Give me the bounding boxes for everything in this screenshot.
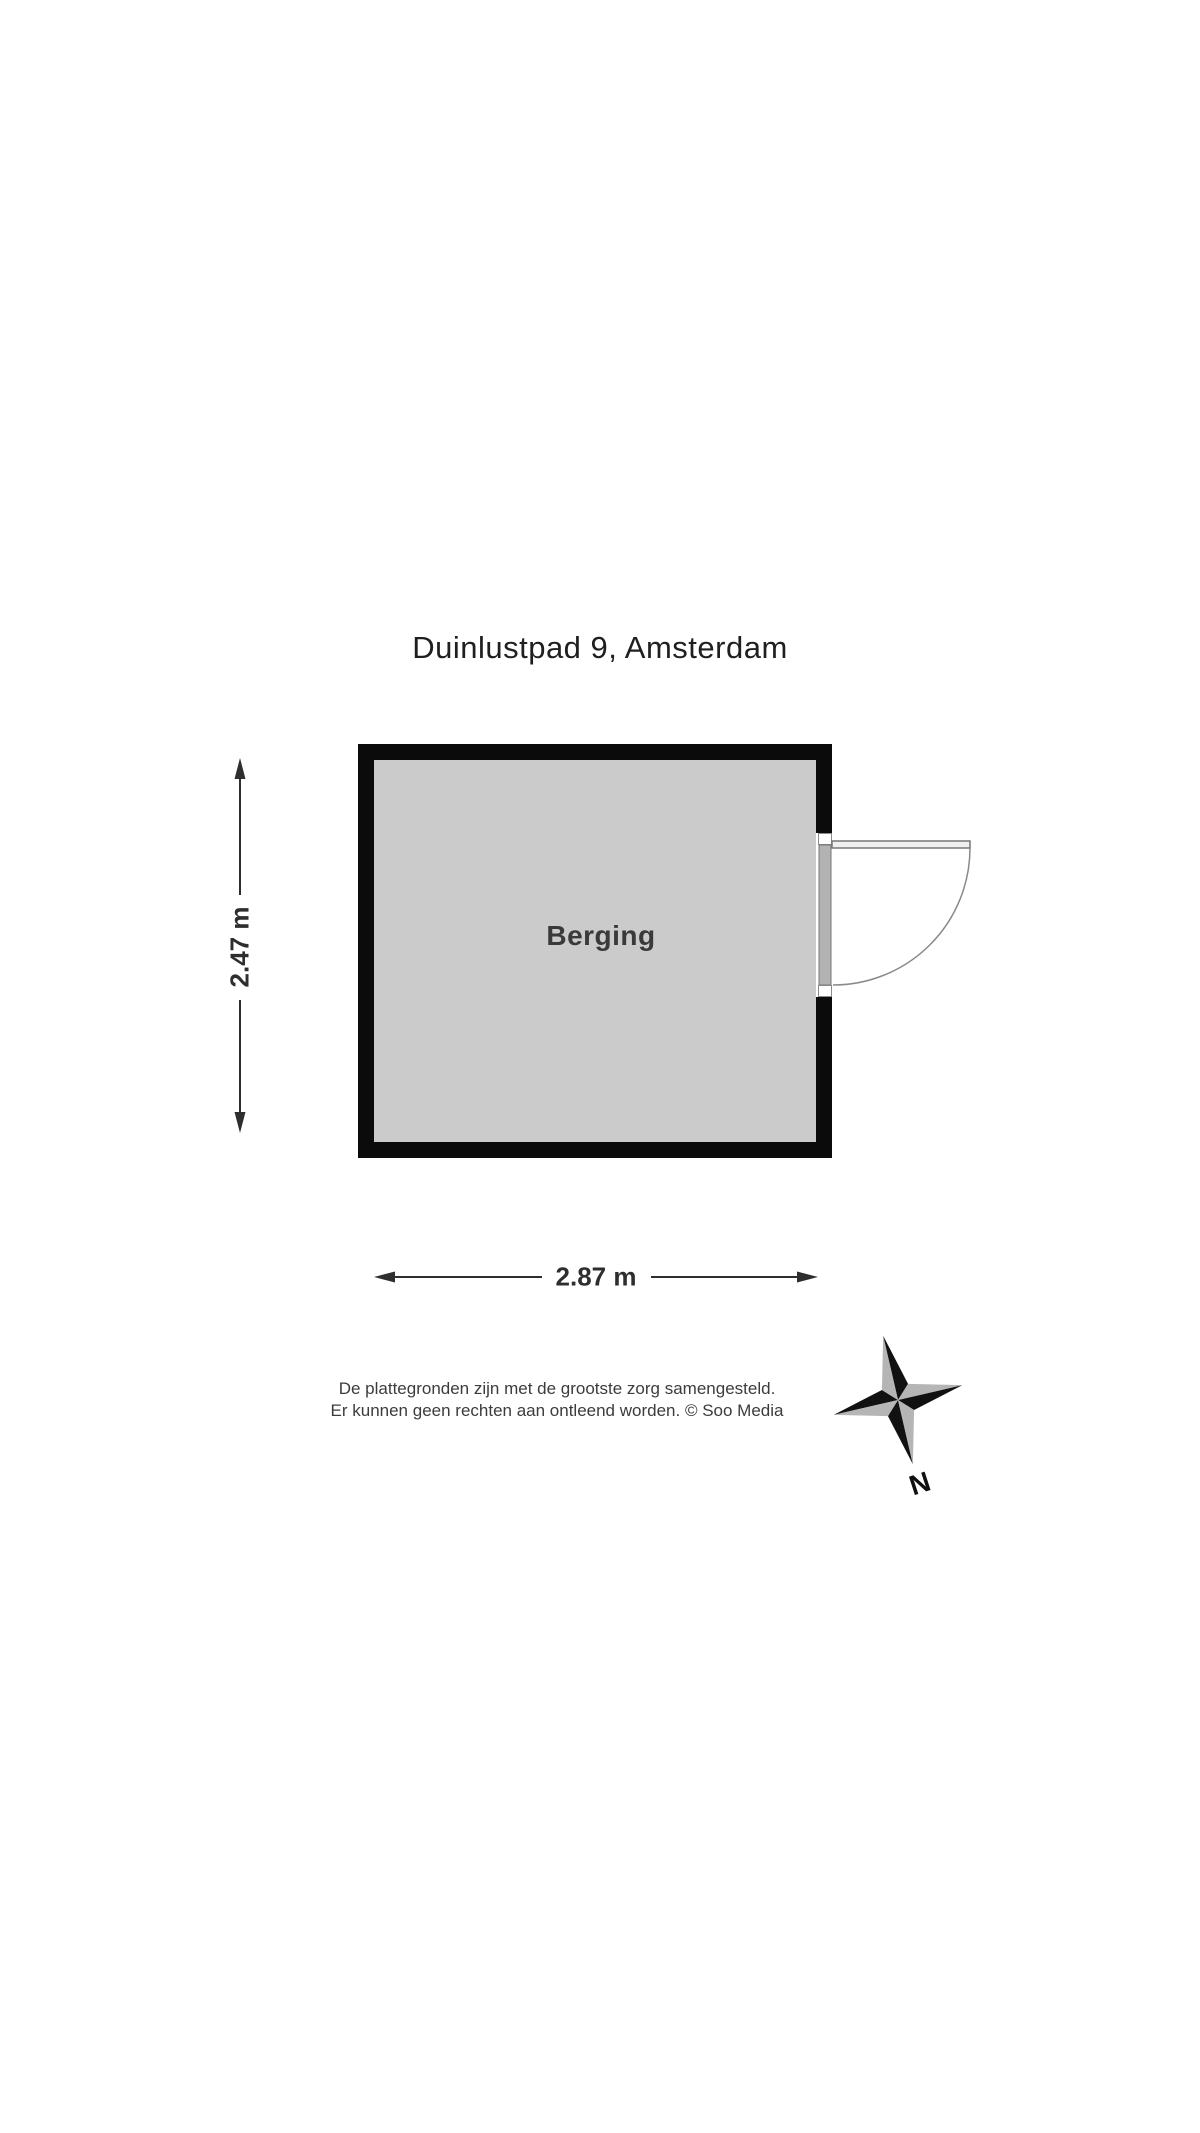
door-swing-arc bbox=[833, 848, 970, 985]
dimension-width-label: 2.87 m bbox=[556, 1262, 637, 1293]
door-stop-top bbox=[819, 834, 832, 845]
door-leaf bbox=[832, 841, 970, 848]
disclaimer-text: De plattegronden zijn met de grootste zo… bbox=[257, 1378, 857, 1422]
door-stop-bottom bbox=[819, 986, 832, 997]
floor-plan-page: Duinlustpad 9, Amsterdam Berging 2.47 m … bbox=[0, 0, 1200, 2133]
arrow-up-icon bbox=[235, 758, 246, 779]
dimension-height-label: 2.47 m bbox=[225, 907, 256, 988]
disclaimer-line-2: Er kunnen geen rechten aan ontleend word… bbox=[257, 1400, 857, 1422]
door-frame-strip bbox=[819, 845, 831, 985]
arrow-right-icon bbox=[797, 1272, 818, 1283]
page-title: Duinlustpad 9, Amsterdam bbox=[0, 630, 1200, 666]
room-label: Berging bbox=[546, 920, 655, 952]
floor-plan-drawing bbox=[0, 0, 1200, 2133]
door-swing-icon bbox=[816, 833, 970, 997]
disclaimer-line-1: De plattegronden zijn met de grootste zo… bbox=[257, 1378, 857, 1400]
arrow-left-icon bbox=[374, 1272, 395, 1283]
arrow-down-icon bbox=[235, 1112, 246, 1133]
